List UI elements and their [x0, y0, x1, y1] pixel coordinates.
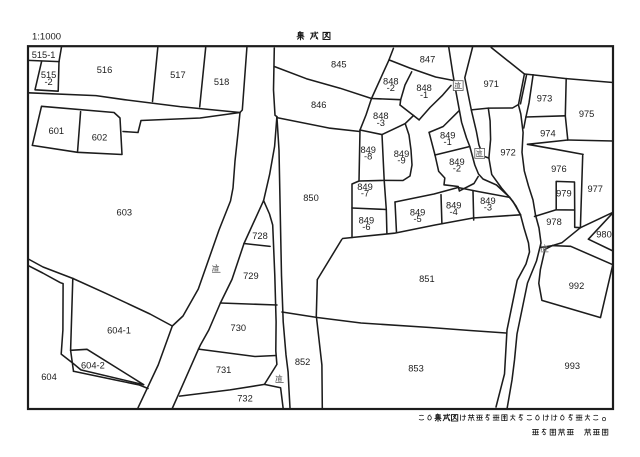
svg-text:980: 980 — [596, 230, 612, 240]
svg-text:845: 845 — [331, 60, 347, 70]
svg-text:603: 603 — [117, 207, 133, 217]
svg-text:516: 516 — [97, 65, 113, 75]
svg-text:847: 847 — [420, 55, 436, 65]
svg-text:730: 730 — [231, 323, 247, 333]
svg-text:852: 852 — [295, 357, 311, 367]
svg-text:729: 729 — [243, 271, 259, 281]
svg-text:972: 972 — [500, 147, 516, 157]
svg-text:851: 851 — [419, 274, 435, 284]
svg-text:971: 971 — [483, 79, 499, 89]
svg-text:973: 973 — [537, 94, 553, 104]
svg-text:604-2: 604-2 — [81, 361, 105, 371]
svg-text:850: 850 — [303, 193, 319, 203]
svg-text:515-1: 515-1 — [32, 50, 56, 60]
svg-text:853: 853 — [408, 363, 424, 373]
svg-text:975: 975 — [579, 109, 595, 119]
svg-text:846: 846 — [311, 100, 327, 110]
svg-text:974: 974 — [540, 129, 556, 139]
svg-text:517: 517 — [170, 70, 186, 80]
svg-text:728: 728 — [252, 231, 268, 241]
svg-text:731: 731 — [216, 365, 232, 375]
svg-text:601: 601 — [49, 126, 65, 136]
svg-text:604: 604 — [41, 372, 57, 382]
svg-text:1:1000: 1:1000 — [32, 32, 61, 43]
svg-text:518: 518 — [214, 77, 230, 87]
svg-text:604-1: 604-1 — [107, 326, 131, 336]
svg-text:602: 602 — [92, 133, 108, 143]
svg-text:978: 978 — [546, 217, 562, 227]
svg-text:977: 977 — [587, 184, 603, 194]
svg-text:732: 732 — [237, 394, 253, 404]
svg-text:992: 992 — [569, 281, 585, 291]
svg-text:979: 979 — [556, 188, 572, 198]
svg-text:976: 976 — [551, 164, 567, 174]
svg-text:993: 993 — [565, 361, 581, 371]
